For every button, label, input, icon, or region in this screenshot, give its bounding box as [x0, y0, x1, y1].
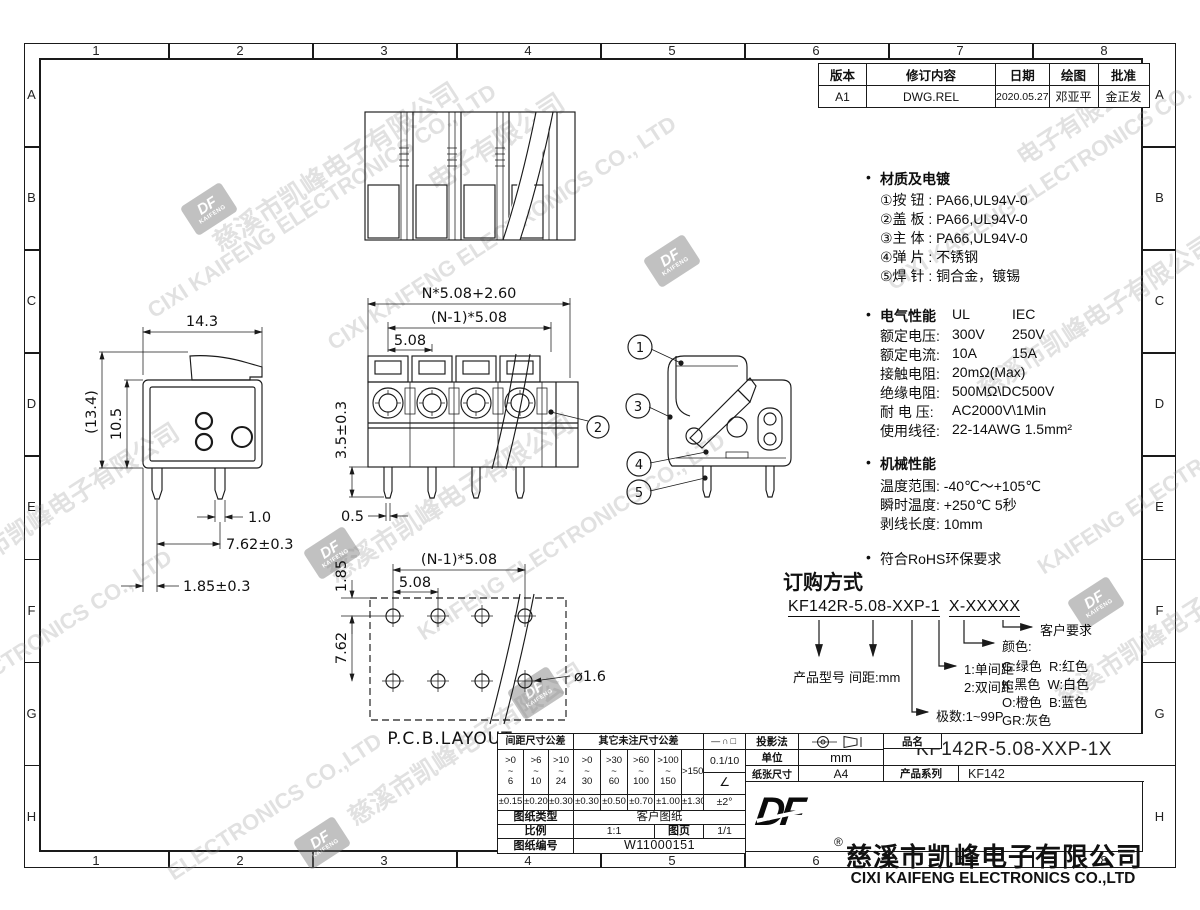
zone-row-label: E: [24, 455, 39, 558]
electrical-col-ul: UL: [952, 306, 970, 322]
materials-bullet: •: [866, 169, 871, 185]
flatness-angle-cell: 0.1/10 ∠: [704, 750, 746, 795]
tol-value: ±1.30: [682, 795, 704, 811]
zone-tick: [24, 559, 39, 561]
title-block: 投影法 单位 mm 纸张尺寸 A4 KF142R-5.08-XXP-1X 品名 …: [745, 733, 1143, 852]
zone-tick: [1143, 352, 1176, 354]
zone-tick: [24, 249, 39, 251]
electrical-value: 10A: [952, 345, 977, 361]
zone-tick: [1143, 662, 1176, 664]
zone-tick: [1143, 765, 1176, 767]
material-item: ③主 体 : PA66,UL94V-0: [880, 228, 1028, 248]
electrical-value: 20mΩ(Max): [952, 364, 1025, 380]
doc-type-label: 图纸类型: [498, 811, 574, 825]
revision-header-date: 日期: [996, 64, 1050, 86]
projection-label: 投影法: [746, 734, 799, 750]
doc-type-value: 客户图纸: [574, 811, 746, 825]
revision-date: 2020.05.27: [996, 86, 1050, 108]
zone-column-label: 6: [744, 43, 888, 58]
ordering-code-suffix: X-XXXXX: [949, 598, 1020, 617]
zone-tick: [24, 352, 39, 354]
zone-tick: [24, 455, 39, 457]
material-item: ②盖 板 : PA66,UL94V-0: [880, 209, 1028, 229]
tol-value: ±0.30: [574, 795, 601, 811]
ordering-color-option: G:绿色 R:红色: [1002, 656, 1088, 675]
zone-tick: [744, 43, 746, 58]
electrical-label: 接触电阻:: [880, 364, 940, 384]
tolerance-table: 间距尺寸公差 其它未注尺寸公差 —∩□ >0 ~ 6 >6 ~ 10 >10 ~…: [497, 733, 746, 854]
unit-label: 单位: [746, 750, 799, 766]
zone-tick: [1143, 249, 1176, 251]
zone-tick: [888, 43, 890, 58]
tol-range: >60 ~ 100: [628, 750, 655, 795]
angle-tolerance: ±2°: [704, 795, 746, 811]
tol-value: ±0.70: [628, 795, 655, 811]
electrical-value: AC2000V\1Min: [952, 402, 1046, 418]
tol-value: ±0.50: [601, 795, 628, 811]
revision-table: 版本 修订内容 日期 绘图 批准 A1 DWG.REL 2020.05.27 邓…: [818, 63, 1150, 108]
part-name-label: 品名: [884, 734, 942, 749]
zone-tick: [1143, 559, 1176, 561]
tol-range: >100 ~ 150: [655, 750, 682, 795]
tol-pitch-header: 间距尺寸公差: [498, 734, 574, 750]
mechanical-item: 瞬时温度: +250℃ 5秒: [880, 495, 1017, 515]
electrical-bullet: •: [866, 306, 871, 322]
tol-range: >0 ~ 6: [498, 750, 524, 795]
drawing-number-value: W11000151: [574, 839, 746, 854]
geo-tolerance-symbols: —∩□: [704, 734, 746, 750]
zone-column-label: 5: [600, 852, 744, 868]
zone-column-label: 2: [168, 852, 312, 868]
zone-tick: [168, 43, 170, 58]
zone-column-label: 4: [456, 852, 600, 868]
zone-row-label: H: [1143, 765, 1176, 868]
tol-range: >6 ~ 10: [524, 750, 549, 795]
ordering-label-model: 产品型号: [793, 667, 845, 686]
zone-column-label: 1: [24, 43, 168, 58]
ordering-label-customer: 客户要求: [1040, 620, 1092, 639]
tol-range: >150: [682, 750, 704, 795]
electrical-label: 绝缘电阻:: [880, 383, 940, 403]
revision-header-content: 修订内容: [867, 64, 996, 86]
material-item: ①按 钮 : PA66,UL94V-0: [880, 190, 1028, 210]
tol-range: >30 ~ 60: [601, 750, 628, 795]
zone-column-label: 1: [24, 852, 168, 868]
scale-label: 比例: [498, 825, 574, 839]
revision-approved-by: 金正发: [1098, 86, 1149, 108]
zone-tick: [744, 852, 746, 868]
rohs-note: 符合RoHS环保要求: [880, 549, 1001, 569]
rohs-bullet: •: [866, 549, 871, 565]
angle-symbol: ∠: [704, 772, 745, 793]
mechanical-bullet: •: [866, 454, 871, 470]
zone-tick: [312, 852, 314, 868]
zone-tick: [456, 43, 458, 58]
electrical-label: 额定电压:: [880, 326, 940, 346]
zone-tick: [312, 43, 314, 58]
zone-tick: [600, 852, 602, 868]
tol-value: ±0.30: [549, 795, 574, 811]
ordering-label-pitch: 间距:mm: [849, 667, 900, 686]
zone-tick: [1143, 146, 1176, 148]
ordering-label-color-title: 颜色:: [1002, 636, 1032, 655]
zone-row-label: F: [24, 559, 39, 662]
drawing-number-label: 图纸编号: [498, 839, 574, 854]
tol-value: ±1.00: [655, 795, 682, 811]
tol-value: ±0.15: [498, 795, 524, 811]
ordering-part-code: KF142R-5.08-XXP-1X-XXXXX: [788, 598, 1020, 616]
revision-version: A1: [819, 86, 867, 108]
mechanical-title: 机械性能: [880, 454, 936, 474]
tol-range: >10 ~ 24: [549, 750, 574, 795]
ordering-code-main: KF142R-5.08-XXP-1: [788, 598, 940, 617]
zone-column-label: 3: [312, 43, 456, 58]
material-item: ⑤焊 针 : 铜合金，镀锡: [880, 266, 1020, 286]
zone-row-label: A: [24, 43, 39, 146]
zone-row-label: B: [24, 146, 39, 249]
registered-mark: ®: [834, 835, 843, 849]
unit-value: mm: [799, 750, 884, 766]
mechanical-item: 剥线长度: 10mm: [880, 514, 983, 534]
electrical-label: 耐 电 压:: [880, 402, 934, 422]
revision-content: DWG.REL: [867, 86, 996, 108]
zone-row-label: D: [24, 352, 39, 455]
zone-tick: [456, 852, 458, 868]
electrical-value: 300V: [952, 326, 985, 342]
company-name-en: CIXI KAIFENG ELECTRONICS CO.,LTD: [846, 870, 1140, 888]
zone-tick: [24, 662, 39, 664]
company-logo: DF: [756, 790, 836, 840]
zone-tick: [24, 146, 39, 148]
electrical-title: 电气性能: [880, 306, 936, 326]
company-name-cn: 慈溪市凯峰电子有限公司: [846, 837, 1140, 874]
scale-value: 1:1: [574, 825, 655, 839]
zone-row-label: G: [1143, 662, 1176, 765]
revision-drawn-by: 邓亚平: [1049, 86, 1098, 108]
ordering-color-option: K:黑色 W:白色: [1002, 674, 1089, 693]
zone-row-label: G: [24, 662, 39, 765]
zone-row-label: C: [24, 249, 39, 352]
zone-column-label: 7: [888, 43, 1032, 58]
zone-tick: [1032, 43, 1034, 58]
electrical-col-iec: IEC: [1012, 306, 1035, 322]
company-row: DF ® 慈溪市凯峰电子有限公司 CIXI KAIFENG ELECTRONIC…: [746, 782, 1144, 853]
zone-row-label: C: [1143, 249, 1176, 352]
electrical-value: 15A: [1012, 345, 1037, 361]
materials-title: 材质及电镀: [880, 169, 950, 189]
ordering-color-option: GR:灰色: [1002, 710, 1051, 729]
revision-header-drawn: 绘图: [1049, 64, 1098, 86]
electrical-value: 22-14AWG 1.5mm²: [952, 421, 1072, 437]
zone-row-label: F: [1143, 559, 1176, 662]
tol-range: >0 ~ 30: [574, 750, 601, 795]
drawing-sheet: 1122334455667788AABBCCDDEEFFGGHH 慈溪市凯峰电子…: [0, 0, 1200, 910]
zone-tick: [600, 43, 602, 58]
zone-column-label: 2: [168, 43, 312, 58]
zone-row-label: D: [1143, 352, 1176, 455]
mechanical-item: 温度范围: -40℃～+105℃: [880, 476, 1041, 496]
tol-value: ±0.20: [524, 795, 549, 811]
ordering-label-poles: 极数:1~99P: [936, 706, 1004, 725]
sheet-value: 1/1: [704, 825, 746, 839]
material-item: ④弹 片 : 不锈钢: [880, 247, 978, 267]
revision-header-approved: 批准: [1098, 64, 1149, 86]
electrical-value: 250V: [1012, 326, 1045, 342]
zone-column-label: 3: [312, 852, 456, 868]
revision-header-version: 版本: [819, 64, 867, 86]
flatness-tolerance: 0.1/10: [704, 751, 745, 772]
zone-column-label: 4: [456, 43, 600, 58]
electrical-label: 额定电流:: [880, 345, 940, 365]
paper-size-value: A4: [799, 766, 884, 782]
zone-row-label: B: [1143, 146, 1176, 249]
zone-tick: [1143, 455, 1176, 457]
paper-size-label: 纸张尺寸: [746, 766, 799, 782]
product-series-label: 产品系列: [884, 766, 959, 782]
zone-tick: [168, 852, 170, 868]
zone-tick: [24, 765, 39, 767]
product-series-value: KF142: [959, 766, 1144, 782]
zone-row-label: E: [1143, 455, 1176, 558]
electrical-value: 500MΩ\DC500V: [952, 383, 1054, 399]
tol-other-header: 其它未注尺寸公差: [574, 734, 704, 750]
ordering-color-option: O:橙色 B:蓝色: [1002, 692, 1087, 711]
electrical-label: 使用线径:: [880, 421, 940, 441]
sheet-label: 图页: [655, 825, 704, 839]
zone-column-label: 5: [600, 43, 744, 58]
zone-row-label: H: [24, 765, 39, 868]
projection-symbol: [799, 734, 884, 750]
ordering-title: 订购方式: [783, 566, 863, 595]
